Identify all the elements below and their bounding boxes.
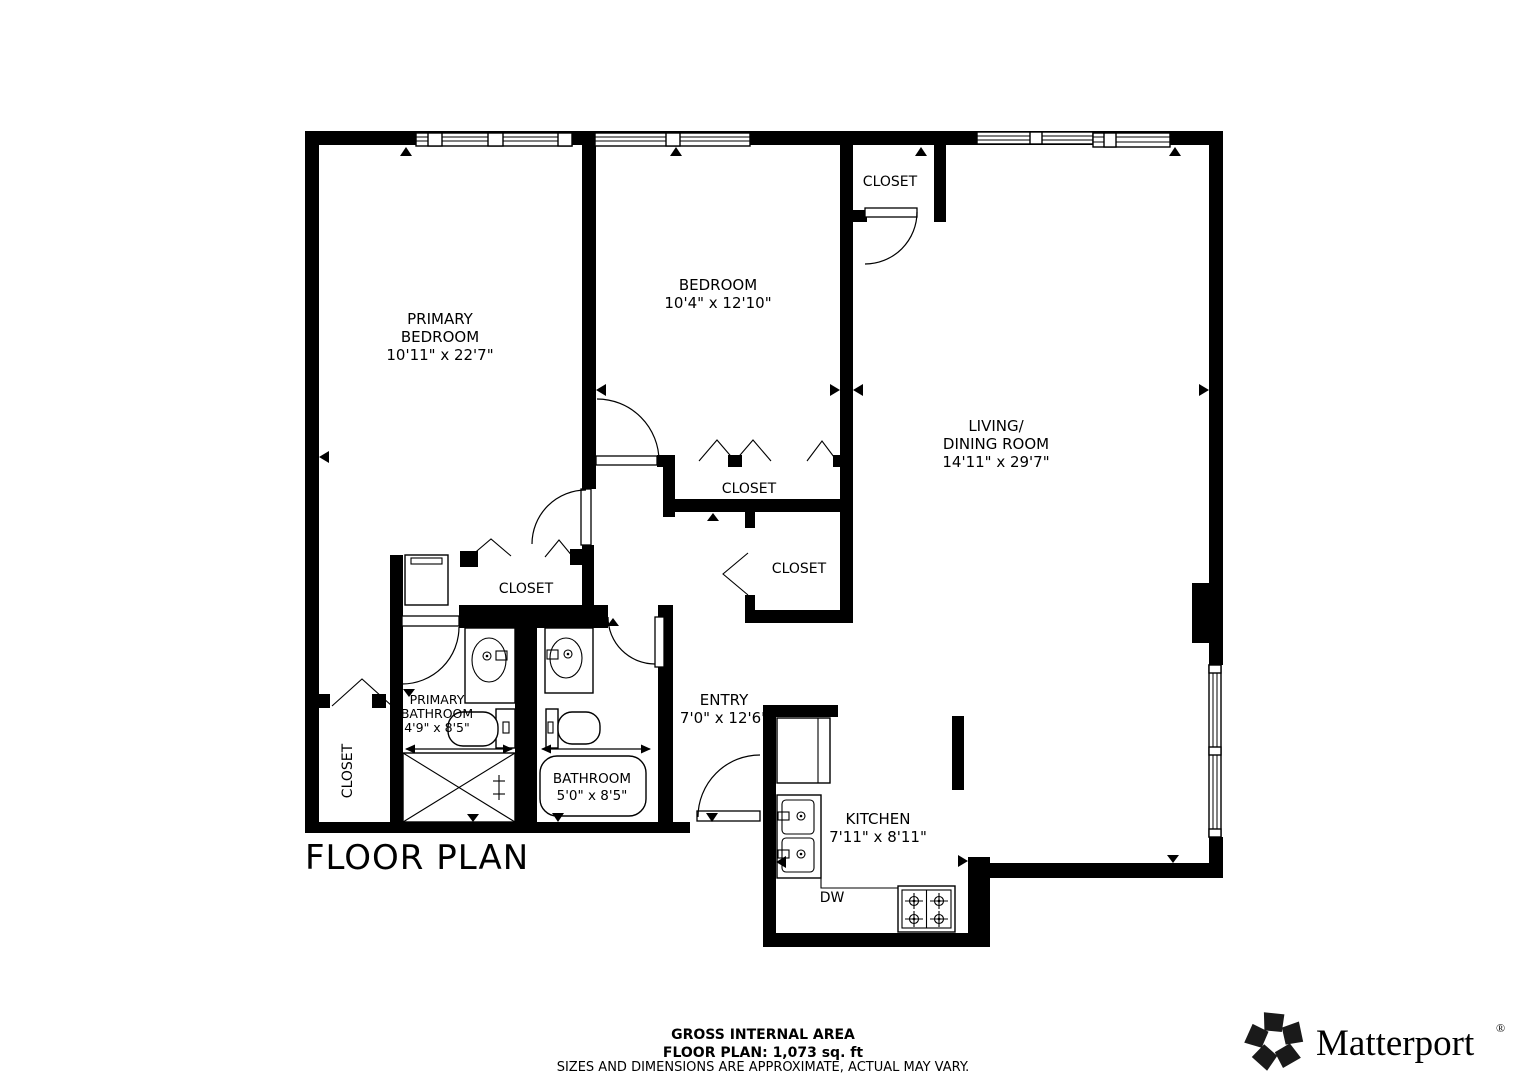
door-primary-bathroom (402, 604, 459, 684)
bedroom-dims: 10'4" x 12'10" (664, 294, 771, 312)
footer-disclaimer: SIZES AND DIMENSIONS ARE APPROXIMATE, AC… (557, 1060, 970, 1075)
bathroom-toilet-icon (546, 709, 600, 748)
door-bathroom (608, 604, 664, 667)
footer: GROSS INTERNAL AREA FLOOR PLAN: 1,073 sq… (557, 1027, 970, 1075)
registered-mark: ® (1496, 1021, 1505, 1035)
washer-icon (405, 555, 448, 605)
matterport-logo: Matterport ® (1240, 1007, 1505, 1077)
primary-bathroom-label: PRIMARY (410, 692, 465, 707)
bathroom-sink-icon (545, 628, 593, 693)
window-living-side (1209, 665, 1221, 837)
door-hall (532, 489, 596, 545)
bedroom-label: BEDROOM (679, 276, 757, 294)
kitchen-label: KITCHEN (846, 810, 911, 828)
primary-bedroom-dims: 10'11" x 22'7" (386, 346, 493, 364)
shower-icon (403, 753, 515, 822)
counter-edge (821, 878, 898, 888)
matterport-pinwheel-icon (1240, 1007, 1312, 1077)
footer-floor-plan-area: FLOOR PLAN: 1,073 sq. ft (663, 1045, 863, 1061)
floor-plan-drawing: PRIMARY BEDROOM 10'11" x 22'7" BEDROOM 1… (0, 0, 1527, 1080)
primary-bathroom-sink-icon (465, 628, 515, 703)
primary-bedroom-label: PRIMARY (407, 310, 474, 328)
closet-label-top-right: CLOSET (863, 174, 918, 190)
closet-label-hall: CLOSET (499, 581, 554, 597)
entry-dims: 7'0" x 12'6" (680, 709, 768, 727)
bathroom-dims: 5'0" x 8'5" (557, 788, 628, 804)
closet-label-left: CLOSET (340, 743, 356, 798)
page-title: FLOOR PLAN (305, 838, 529, 878)
entry-label: ENTRY (700, 691, 749, 709)
primary-bathroom-label: BATHROOM (401, 706, 473, 721)
living-dining-dims: 14'11" x 29'7" (942, 453, 1049, 471)
door-top-right-closet (865, 208, 934, 264)
living-dining-label: DINING ROOM (943, 435, 1049, 453)
closet-label-bedroom: CLOSET (722, 481, 777, 497)
primary-bedroom-label: BEDROOM (401, 328, 479, 346)
living-dining-label: LIVING/ (968, 417, 1024, 435)
door-bedroom (596, 399, 659, 468)
kitchen-dims: 7'11" x 8'11" (829, 828, 927, 846)
bathroom-label: BATHROOM (553, 771, 631, 787)
window-living-right (1093, 133, 1170, 147)
primary-bathroom-dims: 4'9" x 8'5" (404, 720, 470, 735)
matterport-wordmark: Matterport (1316, 1023, 1475, 1064)
fridge-icon (777, 718, 830, 783)
window-bedroom (595, 133, 750, 146)
window-primary-bedroom (416, 133, 572, 146)
walls (305, 131, 1223, 947)
window-living-left (977, 132, 1093, 144)
footer-gross-area: GROSS INTERNAL AREA (671, 1027, 855, 1043)
stove-icon (898, 886, 955, 932)
closet-label-entry: CLOSET (772, 561, 827, 577)
floor-plan-page: PRIMARY BEDROOM 10'11" x 22'7" BEDROOM 1… (0, 0, 1527, 1080)
door-entry-main (690, 755, 763, 834)
dishwasher-label: DW (820, 890, 845, 906)
